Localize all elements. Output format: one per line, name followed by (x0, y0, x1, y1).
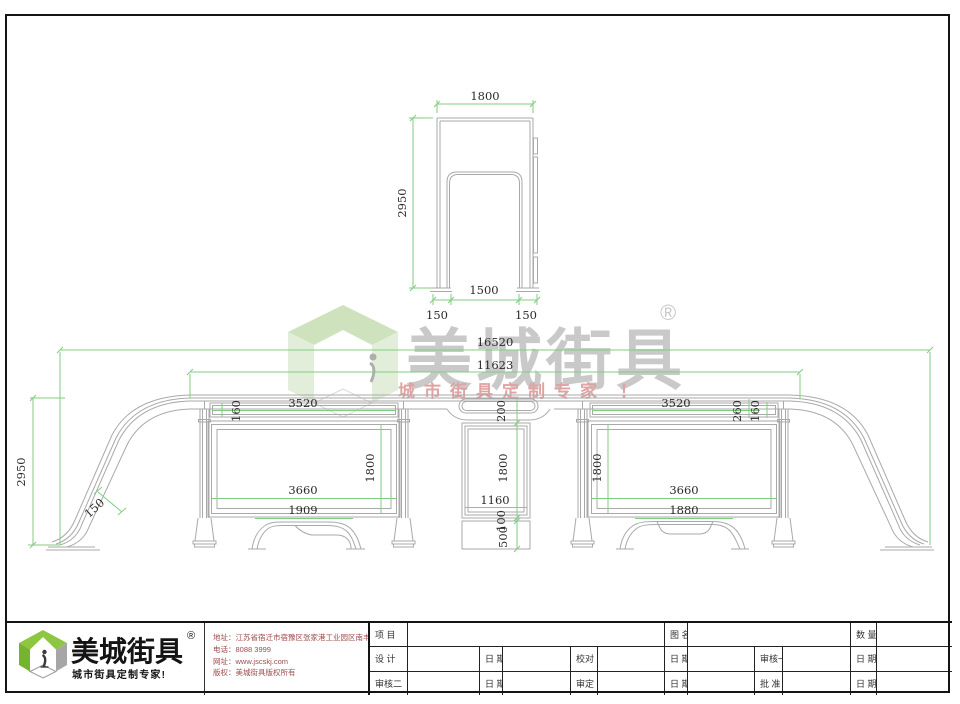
footer-brand-text: 美城街具 (71, 635, 183, 667)
field-reviewer1 (783, 647, 851, 670)
dim-centre-500: 500 (496, 526, 510, 548)
dim-left-bench-1909: 1909 (288, 503, 317, 517)
dim-centre-200: 200 (494, 400, 508, 422)
label-reviewer1: 审核一 (755, 647, 783, 670)
side-view-dimensions (409, 100, 540, 305)
label-project: 项 目 (370, 623, 408, 646)
footer-registered-mark: ® (187, 630, 195, 642)
title-block: 美城街具 ® 城市街具定制专家! 地址：江苏省宿迁市宿豫区张家港工业园区南丰路西… (5, 621, 952, 695)
dim-right-260: 260 (730, 400, 744, 422)
titleblock-table: 项 目 图 名 数 量 设 计 日 期 校对 日 期 审核一 日 期 (370, 623, 952, 695)
logo-figure-icon (42, 650, 46, 654)
field-verify (598, 672, 665, 695)
label-quantity: 数 量 (851, 623, 877, 646)
label-date: 日 期 (480, 672, 503, 695)
company-info: 地址：江苏省宿迁市宿豫区张家港工业园区南丰路西侧1号 电话：8088 3999 … (205, 623, 370, 695)
field-drawing-name (688, 623, 851, 646)
field-reviewer2 (408, 672, 480, 695)
dim-centre-1800: 1800 (496, 453, 510, 482)
titleblock-row-3: 审核二 日 期 审定 日 期 批 准 日 期 (370, 672, 952, 695)
dim-right-panel-3660: 3660 (669, 483, 698, 497)
label-date: 日 期 (851, 672, 877, 695)
label-reviewer2: 审核二 (370, 672, 408, 695)
company-copyright: 版权：美城街具版权所有 (213, 667, 368, 679)
field-proofread (598, 647, 665, 670)
drawing-sheet: 美城街具 ® 城市街具定制专家 ！ (0, 0, 960, 704)
field-quantity (877, 623, 952, 646)
company-logo: 美城街具 ® 城市街具定制专家! (5, 623, 205, 695)
dim-right-strip-3520: 3520 (661, 396, 690, 410)
dim-top-bottom-width: 1500 (469, 283, 498, 297)
label-date: 日 期 (665, 647, 688, 670)
field-date (877, 672, 952, 695)
label-approve: 批 准 (755, 672, 783, 695)
dim-top-width: 1800 (470, 89, 499, 103)
company-logo-zone: 美城街具 ® 城市街具定制专家! (5, 623, 205, 695)
label-drawing-name: 图 名 (665, 623, 688, 646)
dim-overall-16520: 16520 (477, 335, 514, 349)
field-date (688, 672, 755, 695)
field-date (688, 647, 755, 670)
dim-right-bench-1880: 1880 (669, 503, 698, 517)
company-website: 网址：www.jscskj.com (213, 656, 368, 668)
cad-drawing: 1800 2950 1500 150 150 (0, 0, 960, 704)
dim-top-leg-left: 150 (426, 308, 448, 322)
dim-right-160: 160 (748, 400, 762, 422)
label-date: 日 期 (665, 672, 688, 695)
field-date (503, 647, 571, 670)
field-project (408, 623, 665, 646)
company-address: 地址：江苏省宿迁市宿豫区张家港工业园区南丰路西侧1号 (213, 632, 368, 644)
dim-top-leg-right: 150 (515, 308, 537, 322)
titleblock-row-1: 项 目 图 名 数 量 (370, 623, 952, 647)
logo-m-chevron (19, 630, 67, 650)
label-design: 设 计 (370, 647, 408, 670)
field-date (877, 647, 952, 670)
dim-centre-1160: 1160 (480, 493, 509, 507)
label-verify: 审定 (571, 672, 598, 695)
footer-tagline: 城市街具定制专家! (72, 668, 166, 681)
dim-top-height: 2950 (395, 188, 409, 217)
field-design (408, 647, 480, 670)
dim-right-panel-1800: 1800 (590, 453, 604, 482)
side-view-geometry (430, 118, 540, 292)
dim-height-2950: 2950 (14, 457, 28, 486)
label-proofread: 校对 (571, 647, 598, 670)
titleblock-row-2: 设 计 日 期 校对 日 期 审核一 日 期 (370, 647, 952, 671)
field-approve (783, 672, 851, 695)
company-phone: 电话：8088 3999 (213, 644, 368, 656)
dim-left-strip-3520: 3520 (288, 396, 317, 410)
dim-span-11623: 11623 (477, 358, 514, 372)
dim-left-strip-160: 160 (229, 400, 243, 422)
label-date: 日 期 (851, 647, 877, 670)
dim-left-panel-1800: 1800 (363, 453, 377, 482)
label-date: 日 期 (480, 647, 503, 670)
dim-left-panel-3660: 3660 (288, 483, 317, 497)
field-date (503, 672, 571, 695)
elevation-roof (46, 395, 934, 550)
